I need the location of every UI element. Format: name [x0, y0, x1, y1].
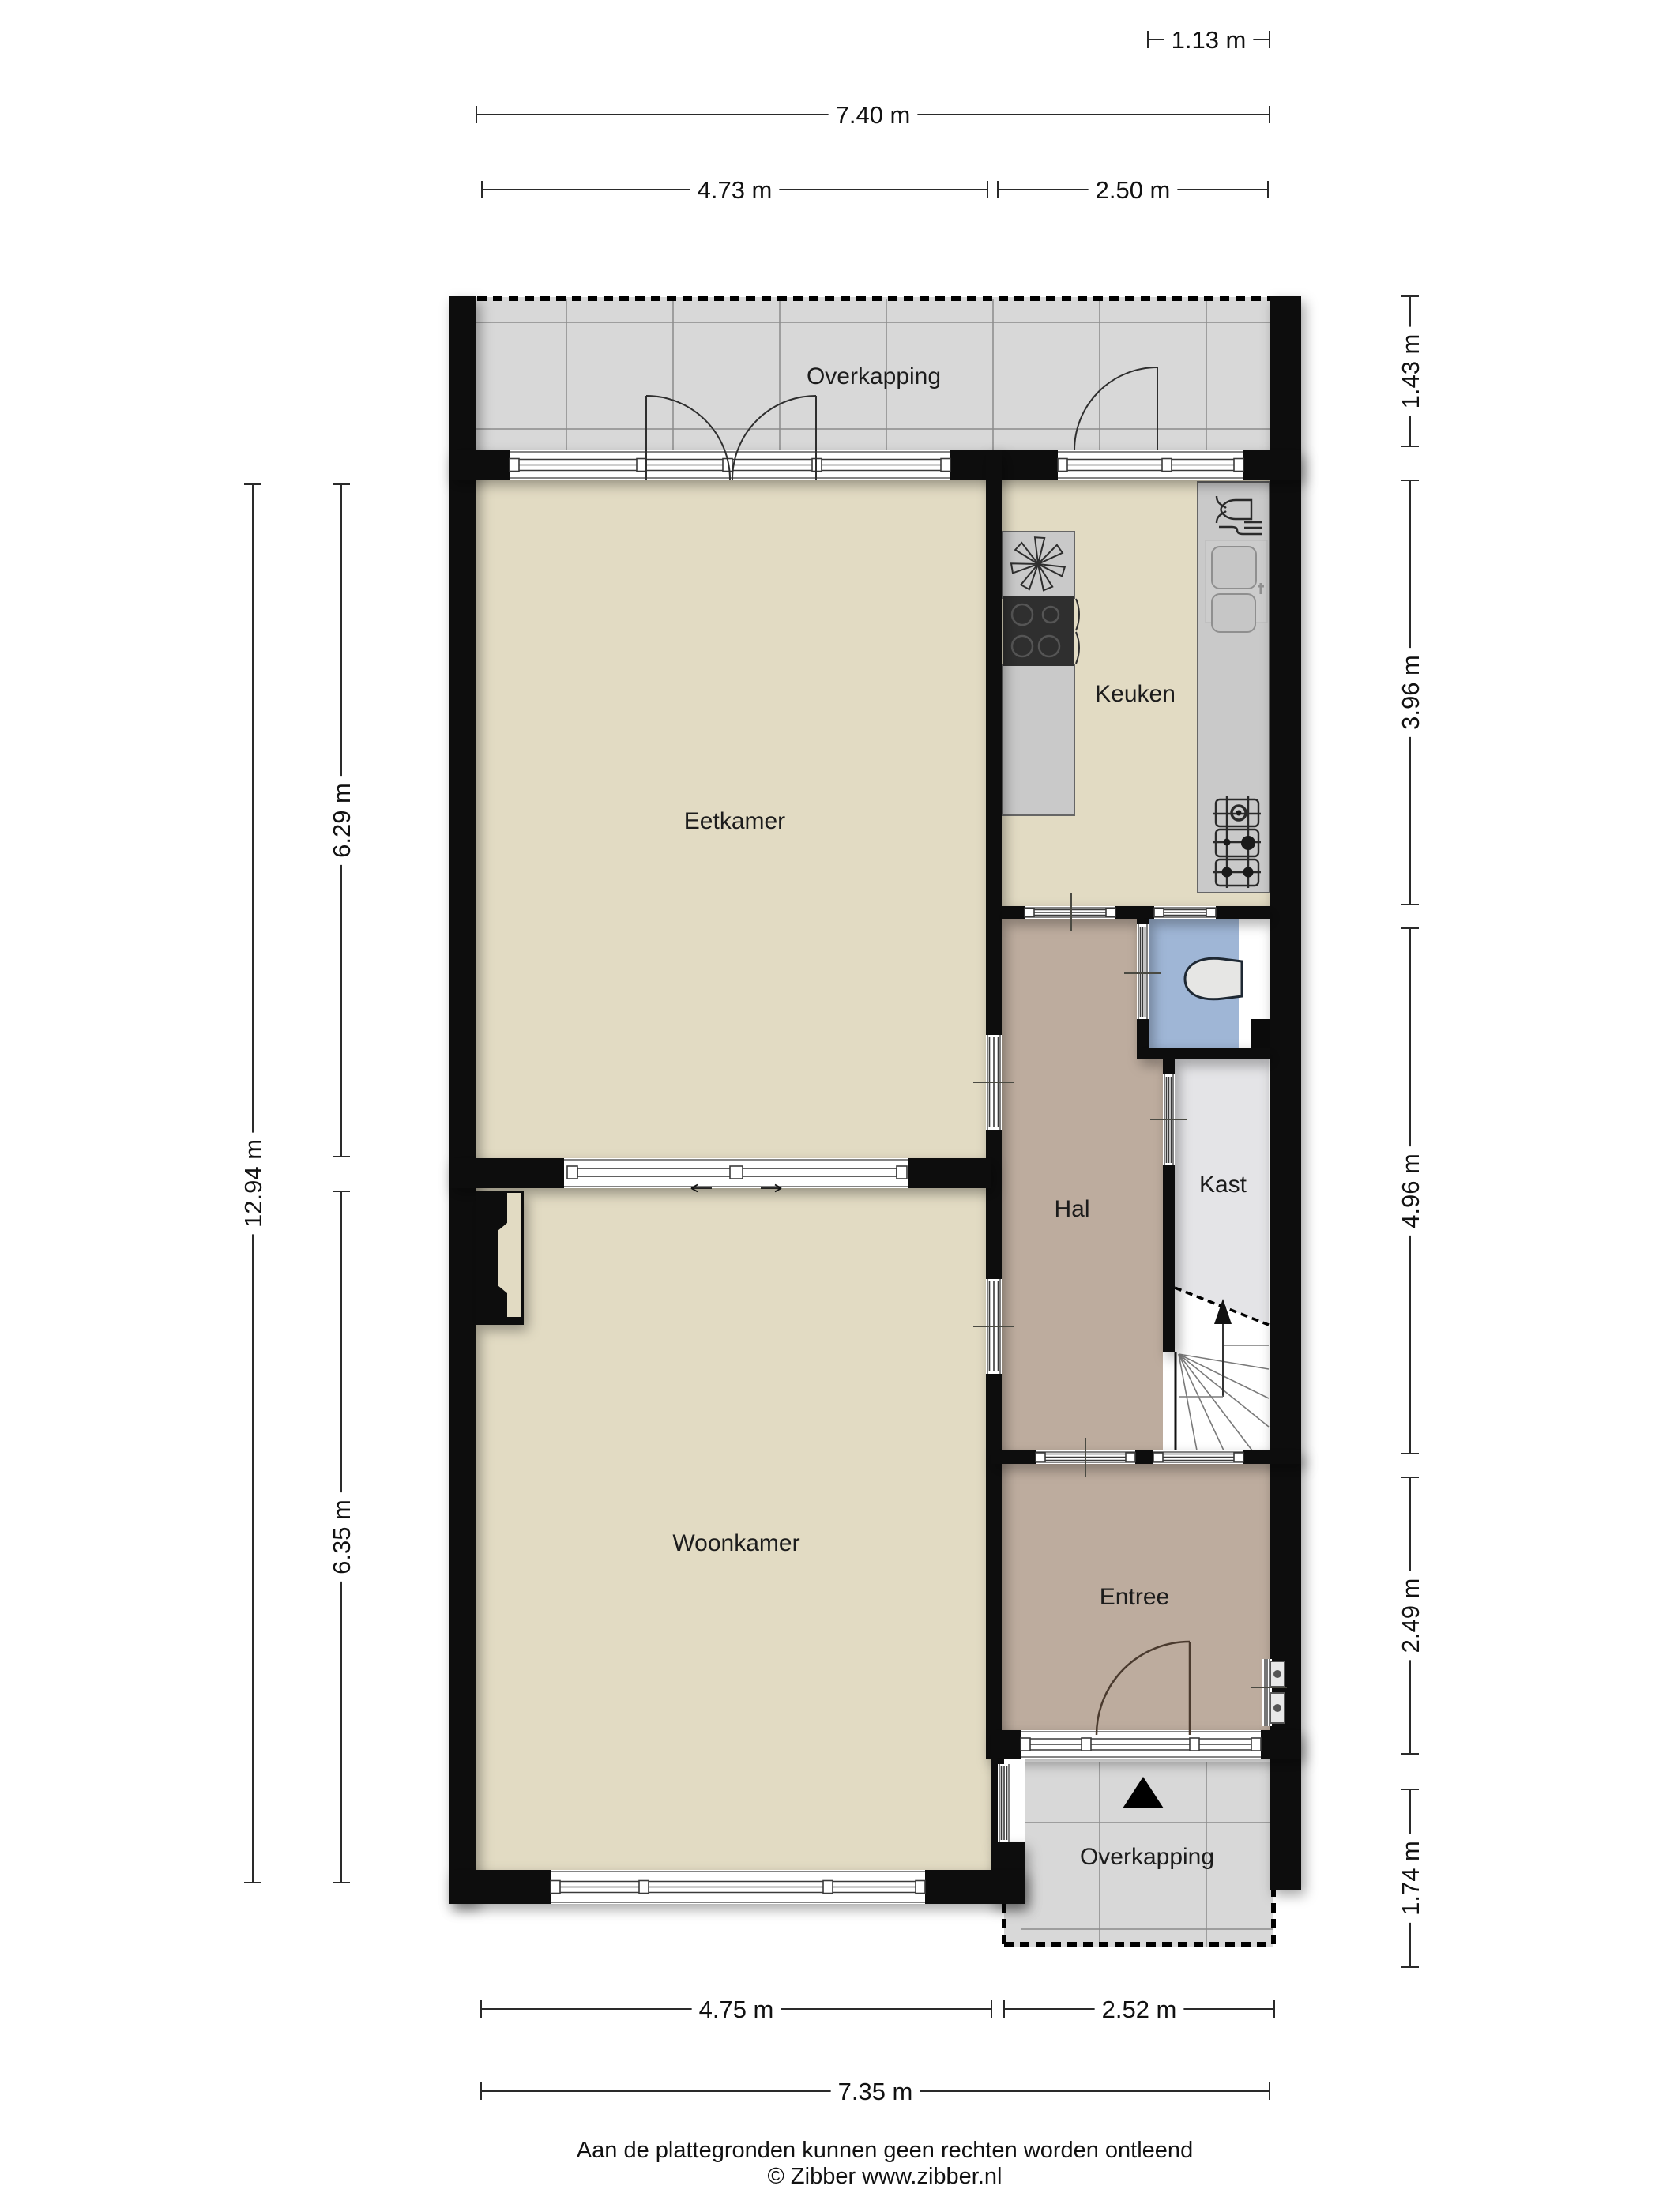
svg-text:2.52 m: 2.52 m [1102, 1996, 1177, 2023]
svg-text:Overkapping: Overkapping [1080, 1844, 1214, 1870]
svg-text:2.50 m: 2.50 m [1096, 176, 1171, 204]
svg-text:12.94 m: 12.94 m [239, 1139, 267, 1228]
svg-text:3.96 m: 3.96 m [1397, 655, 1424, 730]
svg-text:Overkapping: Overkapping [807, 363, 941, 389]
svg-text:6.29 m: 6.29 m [328, 783, 355, 858]
svg-text:Kast: Kast [1199, 1172, 1247, 1198]
svg-text:Woonkamer: Woonkamer [672, 1530, 799, 1556]
svg-text:7.40 m: 7.40 m [836, 101, 911, 129]
svg-text:1.13 m: 1.13 m [1172, 26, 1247, 54]
svg-text:© Zibber www.zibber.nl: © Zibber www.zibber.nl [768, 2164, 1003, 2189]
svg-text:Keuken: Keuken [1095, 681, 1176, 707]
svg-text:7.35 m: 7.35 m [838, 2078, 913, 2105]
svg-text:1.43 m: 1.43 m [1397, 334, 1424, 409]
svg-text:Hal: Hal [1054, 1196, 1089, 1222]
svg-text:1.74 m: 1.74 m [1397, 1841, 1424, 1916]
svg-text:4.75 m: 4.75 m [699, 1996, 774, 2023]
svg-text:Entree: Entree [1100, 1584, 1169, 1610]
svg-text:Eetkamer: Eetkamer [684, 808, 785, 834]
svg-text:4.73 m: 4.73 m [698, 176, 773, 204]
svg-text:Aan de plattegronden kunnen ge: Aan de plattegronden kunnen geen rechten… [577, 2138, 1193, 2163]
svg-text:6.35 m: 6.35 m [328, 1499, 355, 1574]
svg-text:2.49 m: 2.49 m [1397, 1578, 1424, 1653]
svg-text:4.96 m: 4.96 m [1397, 1153, 1424, 1228]
